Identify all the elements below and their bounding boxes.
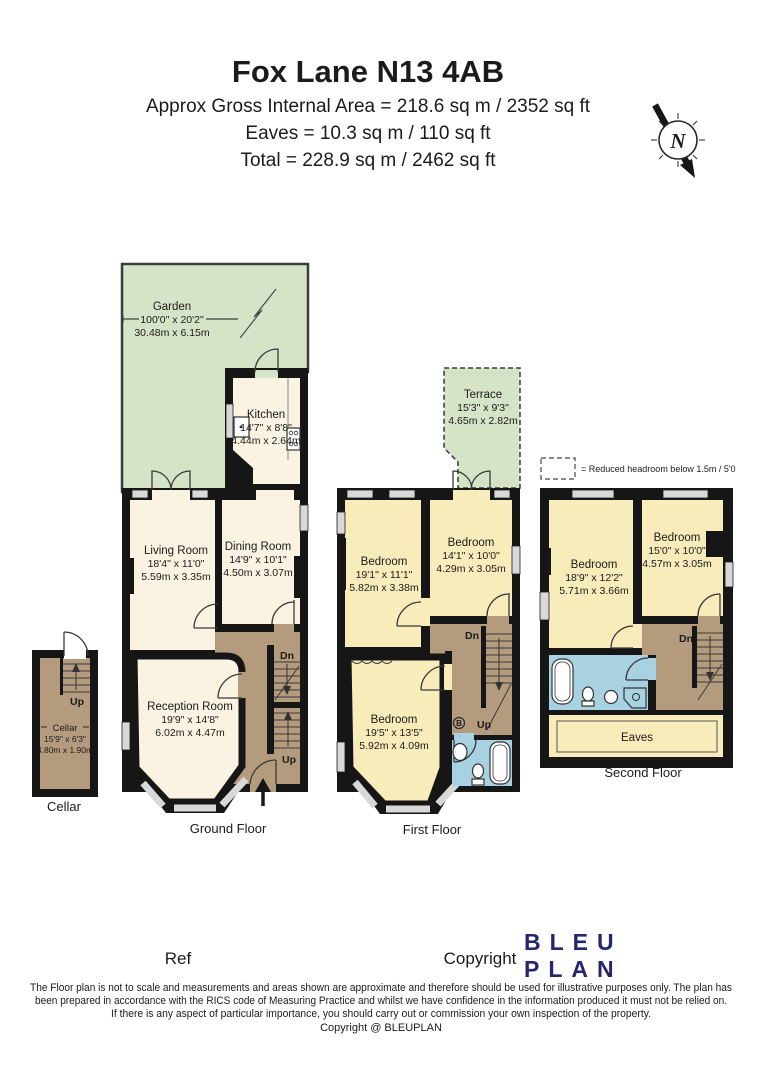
sf-bedroom-right-chimney	[706, 531, 733, 557]
ff-bedroom-front-side-window	[337, 742, 345, 772]
kitchen-garden-door-gap	[255, 370, 278, 378]
sf-sink	[605, 691, 618, 704]
cellar-imperial: 15'9" x 6'3"	[44, 734, 86, 744]
boiler-label: B	[456, 719, 462, 728]
sf-bedroom-left-side-window	[540, 592, 549, 620]
cellar-stairs-up-label: Up	[70, 696, 84, 708]
copyright-label: Copyright	[444, 949, 517, 968]
cellar-door-gap	[64, 649, 86, 659]
cellar-caption: Cellar	[47, 799, 82, 814]
reception-name: Reception Room	[147, 701, 233, 713]
ground-stairs-up-label: Up	[282, 754, 296, 766]
ff-bedroom-left-chimney	[337, 538, 346, 590]
kitchen-dining-opening	[256, 490, 294, 500]
sf-window-2	[663, 490, 708, 498]
living-room-name: Living Room	[144, 545, 208, 557]
reception-metric: 6.02m x 4.47m	[155, 727, 225, 739]
ff-bedroom-right-window	[512, 546, 520, 574]
cellar-name: Cellar	[53, 723, 78, 734]
ff-bedroom-front-metric: 5.92m x 4.09m	[359, 740, 429, 752]
ff-bedroom-front-door-gap	[444, 664, 452, 690]
floorplan-page: Fox Lane N13 4AB Approx Gross Internal A…	[0, 0, 763, 1080]
sf-bedroom-left-metric: 5.71m x 3.66m	[559, 585, 629, 597]
sf-bedroom-right-metric: 4.57m x 3.05m	[642, 558, 712, 570]
sf-bedroom-left-door-gap	[633, 624, 642, 648]
ff-bedroom-front-imperial: 19'5" x 13'5"	[365, 727, 423, 739]
disclaimer-line-1: The Floor plan is not to scale and measu…	[30, 982, 732, 994]
living-window-right	[192, 490, 208, 498]
living-french-door-gap	[152, 490, 190, 500]
eaves-label: Eaves	[621, 732, 653, 744]
ff-stairs-up-label: Up	[477, 719, 491, 731]
garden-metric: 30.48m x 6.15m	[134, 327, 210, 339]
ff-stairs-dn-label: Dn	[465, 630, 479, 642]
sf-toilet	[582, 687, 594, 706]
dining-window	[300, 505, 308, 531]
kitchen-window	[226, 404, 233, 438]
page-title: Fox Lane N13 4AB	[232, 54, 504, 89]
sf-bath	[552, 659, 573, 704]
living-room-imperial: 18'4" x 11'0"	[148, 558, 205, 570]
logo-line1: BLEU	[524, 929, 623, 955]
copyright-line: Copyright @ BLEUPLAN	[320, 1022, 442, 1034]
disclaimer-line-3: If there is any aspect of particular imp…	[111, 1008, 651, 1020]
ground-floor-caption: Ground Floor	[190, 821, 267, 836]
terrace-name: Terrace	[464, 389, 502, 401]
ff-front-window-1	[347, 490, 373, 498]
sf-bathroom-door-gap	[648, 658, 656, 680]
garden-name: Garden	[153, 301, 191, 313]
sf-bedroom-right-door-gap	[698, 616, 720, 624]
ff-bedroom-left-imperial: 19'1" x 11'1"	[356, 569, 413, 581]
ff-bedroom-left-metric: 5.82m x 3.38m	[349, 582, 419, 594]
ff-bedroom-right-name: Bedroom	[448, 537, 495, 549]
terrace-area	[444, 368, 520, 488]
ff-bedroom-right-door-gap	[487, 616, 509, 624]
dining-room-metric: 4.50m x 3.07m	[223, 567, 293, 579]
ff-divider-door-gap	[421, 598, 430, 626]
ff-bedroom-front-wall	[445, 651, 452, 735]
dining-room-name: Dining Room	[225, 541, 291, 553]
disclaimer-line-2: been prepared in accordance with the RIC…	[35, 995, 727, 1007]
sf-bedroom-right-imperial: 15'0" x 10'0"	[648, 545, 706, 557]
ff-bedroom-left-window	[337, 512, 345, 534]
compass-north-label: N	[669, 129, 686, 153]
ff-bedroom-left-name: Bedroom	[361, 556, 408, 568]
reception-side-window	[122, 722, 130, 750]
terrace-metric: 4.65m x 2.82m	[448, 415, 518, 427]
footer: Ref Copyright BLEU PLAN The Floor plan i…	[30, 929, 732, 1034]
second-floor-plan: = Reduced headroom below 1.5m / 5'0 Bedr…	[540, 458, 736, 780]
sf-bedroom-left-name: Bedroom	[571, 559, 618, 571]
reduced-headroom-swatch	[541, 458, 575, 479]
reception-chimney	[122, 686, 134, 720]
sf-bedroom-right-side-window	[725, 562, 733, 587]
ground-stairs-dn-label: Dn	[280, 650, 294, 662]
compass-icon: N	[651, 105, 705, 178]
reduced-headroom-label: = Reduced headroom below 1.5m / 5'0	[581, 464, 736, 474]
ff-sink	[453, 744, 467, 761]
second-floor-caption: Second Floor	[604, 765, 682, 780]
ff-bath	[490, 742, 510, 784]
dining-hall-door-gap	[274, 624, 294, 632]
sf-bedroom-right-name: Bedroom	[654, 532, 701, 544]
reception-door-gap	[238, 672, 246, 698]
gross-internal-area: Approx Gross Internal Area = 218.6 sq m …	[146, 96, 591, 117]
floor-plan-svg: Fox Lane N13 4AB Approx Gross Internal A…	[0, 0, 763, 1080]
ff-bedroom-front-name: Bedroom	[371, 714, 418, 726]
first-floor-plan: Terrace 15'3" x 9'3" 4.65m x 2.82m Bedro…	[337, 368, 520, 837]
living-chimney	[122, 558, 134, 594]
compass-arrowhead	[680, 159, 695, 178]
sf-bedroom-left-chimney	[540, 548, 551, 575]
header: Fox Lane N13 4AB Approx Gross Internal A…	[146, 54, 591, 171]
kitchen-metric: 4.44m x 2.64m	[231, 435, 301, 447]
living-room-metric: 5.59m x 3.35m	[141, 571, 211, 583]
ref-label: Ref	[165, 949, 192, 968]
ff-bedroom-right-metric: 4.29m x 3.05m	[436, 563, 506, 575]
ff-toilet	[472, 764, 484, 785]
first-floor-caption: First Floor	[403, 822, 462, 837]
dining-room-imperial: 14'9" x 10'1"	[229, 554, 287, 566]
ff-front-window-2	[389, 490, 415, 498]
garden-imperial: 100'0" x 20'2"	[140, 314, 204, 326]
eaves-area: Eaves = 10.3 sq m / 110 sq ft	[245, 123, 491, 144]
living-dining-wall	[215, 498, 222, 600]
terrace-french-door-gap	[453, 490, 490, 500]
ff-front-window-3	[494, 490, 510, 498]
ff-bedroom-right-imperial: 14'1" x 10'0"	[442, 550, 500, 562]
terrace-imperial: 15'3" x 9'3"	[457, 402, 509, 414]
sf-stairs-dn-label: Dn	[679, 633, 693, 645]
ff-bathroom-door-gap	[454, 733, 474, 741]
dining-chimney	[294, 556, 308, 598]
cellar-metric: 4.80m x 1.90m	[37, 745, 93, 755]
kitchen-name: Kitchen	[247, 409, 285, 421]
sf-window-1	[572, 490, 614, 498]
cellar-plan: Up Cellar 15'9" x 6'3" 4.80m x 1.90m Cel…	[32, 632, 98, 814]
kitchen-imperial: 14'7" x 8'8"	[240, 422, 292, 434]
logo-line2: PLAN	[524, 956, 623, 982]
bleuplan-logo: BLEU PLAN	[524, 929, 623, 982]
living-window-left	[132, 490, 148, 498]
sf-bedroom-left-imperial: 18'9" x 12'2"	[565, 572, 623, 584]
total-area: Total = 228.9 sq m / 2462 sq ft	[240, 150, 496, 171]
reception-imperial: 19'9" x 14'8"	[161, 714, 219, 726]
